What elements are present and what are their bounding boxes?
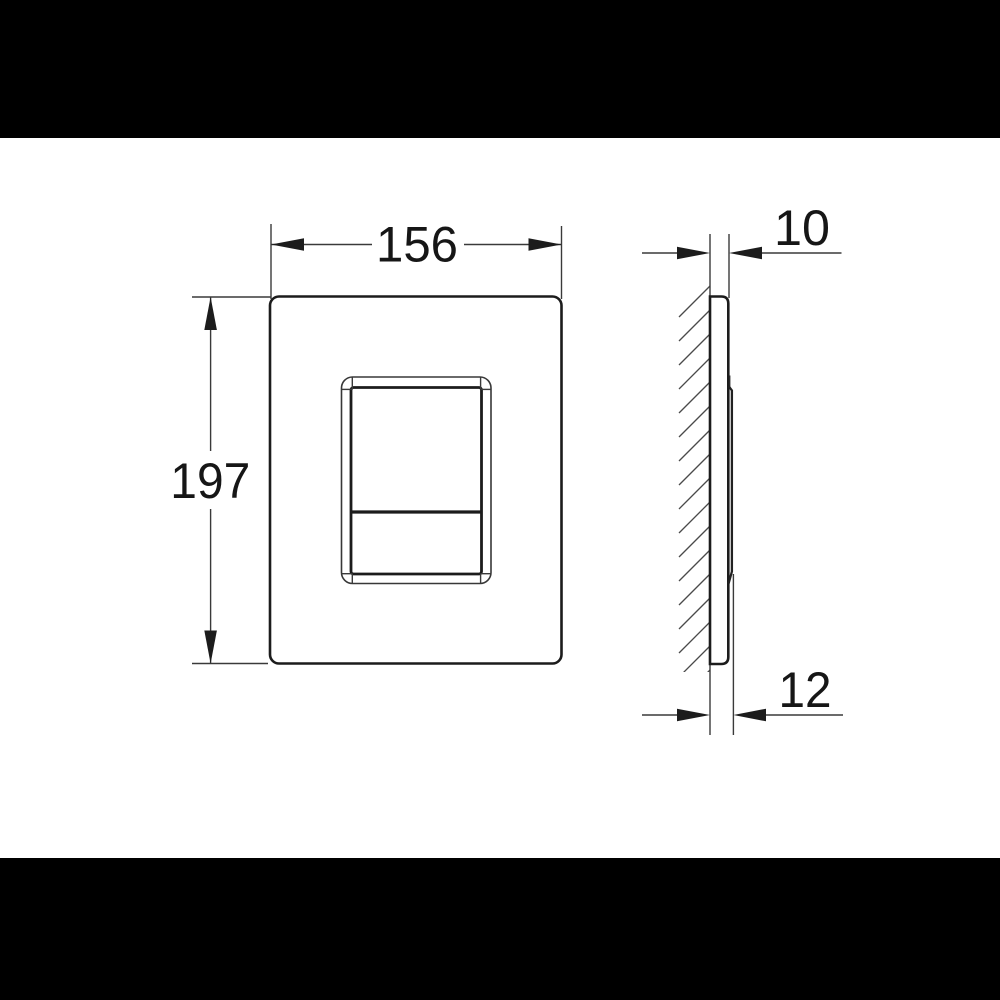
svg-text:12: 12: [779, 662, 832, 718]
svg-text:156: 156: [376, 217, 458, 273]
svg-text:197: 197: [170, 453, 250, 509]
svg-text:10: 10: [774, 200, 830, 256]
